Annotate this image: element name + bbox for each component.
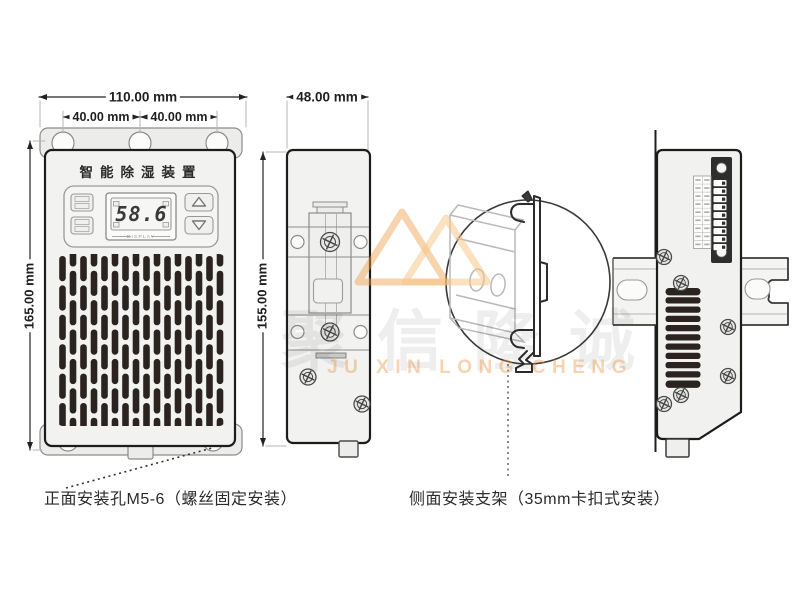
louver-slat [666,371,701,377]
vent-slot [91,359,98,384]
vent-slot [70,359,77,384]
vent-slot [196,330,203,355]
vent-slot [185,285,192,310]
vent-slot [59,344,66,369]
vent-slot [185,344,192,369]
vent-slot [196,359,203,384]
vent-slot [133,359,140,384]
vent-slot [154,388,161,413]
dim-height-165: 165.00 mm [22,260,37,333]
terminal-pin-dot [722,246,725,249]
vent-slot [164,403,171,428]
vent-slot [185,315,192,340]
dim-height-155: 155.00 mm [255,260,270,333]
vent-slot [143,344,150,369]
vent-slot [206,285,213,310]
vent-slot [175,388,182,413]
vent-slot [217,359,224,384]
vent-slot [112,388,119,413]
din-rail-left [613,258,657,325]
vent-slot [101,403,108,428]
label-text-mark [695,179,700,181]
clip-window [314,279,343,303]
dim-hole-right: 40.00 mm [148,110,211,124]
label-text-mark [704,219,709,221]
vent-slot [154,359,161,384]
terminal-pin-dot [722,214,725,217]
display-value: 58.6 [115,202,167,226]
bottom-tab [666,439,689,457]
technical-diagram: 聚信隆诚 JU XIN LONG CHENG 110.00 mm 40.00 m… [0,0,800,600]
vent-slot [59,374,66,399]
vent-slot [196,300,203,325]
vent-slot [185,403,192,428]
vent-slot [101,285,108,310]
terminal-pin-dot [722,182,725,185]
terminal-screw [716,163,726,173]
vent-slot [175,359,182,384]
louver-slat [666,325,701,331]
vent-slot [154,271,161,296]
vent-slot [164,374,171,399]
terminal-pin-dot [722,190,725,193]
rail-slot [617,280,647,300]
vent-slot [122,256,129,281]
vent-slot [59,315,66,340]
vent-slot [164,315,171,340]
vent-slot [70,271,77,296]
vent-slot [122,344,129,369]
vent-slot [70,330,77,355]
vent-slot [143,374,150,399]
vent-slot [112,330,119,355]
label-text-mark [695,195,700,197]
vent-slot [154,330,161,355]
rail-mounted-view [613,130,788,457]
vent-slot [217,388,224,413]
terminal-pin-dot [722,230,725,233]
label-text-mark [704,244,709,246]
band-hole [354,236,367,249]
label-text-mark [695,187,700,189]
louver-slat [666,353,701,359]
vent-slot [217,271,224,296]
vent-slot [143,315,150,340]
din-rail-right [741,258,788,325]
device-title: 智能除湿装置 [80,161,203,181]
vent-slot [112,300,119,325]
louver-slat [666,297,701,303]
side-view [287,150,370,457]
vent-slot [122,374,129,399]
vent-slot [196,388,203,413]
vent-slot [175,271,182,296]
vent-slot [133,330,140,355]
vent-slot [122,403,129,428]
band-hole [354,326,367,339]
terminal-pin-dot [722,238,725,241]
vent-slot [70,300,77,325]
vent-slot [91,388,98,413]
vent-slot [80,403,87,428]
vent-slot [133,300,140,325]
side-louver [666,288,701,388]
vent-slot [80,315,87,340]
vent-slot [316,353,346,358]
dim-width-48: 48.00 mm [293,90,361,105]
vent-slot [133,388,140,413]
vent-slot [133,271,140,296]
vent-slot [217,330,224,355]
label-text-mark [695,244,700,246]
vent-slot [206,344,213,369]
vent-slot [101,315,108,340]
vent-slot [59,285,66,310]
vent-slot [91,271,98,296]
vent-slot [101,256,108,281]
vent-slot [101,374,108,399]
vent-slot [122,315,129,340]
vent-slot [164,285,171,310]
label-text-mark [695,236,700,238]
vent-slot [175,330,182,355]
vent-slot [59,403,66,428]
terminal-pin-dot [722,222,725,225]
terminal-pin-dot [722,206,725,209]
vent-slot [80,374,87,399]
vent-slot [143,256,150,281]
louver-slat [666,344,701,350]
louver-slat [666,362,701,368]
vent-slot [59,256,66,281]
label-text-mark [704,211,709,213]
vent-slot [80,344,87,369]
side-mounting-caption: 侧面安装支架（35mm卡扣式安装） [409,485,670,509]
dim-hole-left: 40.00 mm [70,110,133,124]
label-text-mark [695,203,700,205]
vent-slot [112,271,119,296]
vent-slot [185,256,192,281]
dim-width-110: 110.00 mm [106,90,180,105]
vent-slot [206,403,213,428]
vent-slot [80,256,87,281]
louver-slat [666,334,701,340]
vent-slot [164,256,171,281]
vent-slot [164,344,171,369]
vent-slot [143,285,150,310]
vent-slot [185,374,192,399]
label-text-mark [704,203,709,205]
vent-slot [143,403,150,428]
band-hole [291,236,304,249]
label-text-mark [704,195,709,197]
label-text-mark [704,179,709,181]
clip-cap [313,202,347,207]
label-text-mark [704,236,709,238]
label-text-mark [695,219,700,221]
vent-slot [70,388,77,413]
vent-slot [91,300,98,325]
vent-slot [206,256,213,281]
label-text-mark [695,228,700,230]
vent-slot [206,374,213,399]
vent-slot [175,300,182,325]
louver-slat [666,381,701,388]
vent-slot [206,315,213,340]
vent-slot [101,344,108,369]
label-text-mark [695,211,700,213]
vent-slot [80,285,87,310]
rail-slot [745,279,770,299]
label-text-mark [704,228,709,230]
louver-slat [666,307,701,313]
vent-slot [196,271,203,296]
vent-slot [112,359,119,384]
louver-slat [666,316,701,322]
band-hole [291,326,304,339]
vent-slot [217,300,224,325]
vent-slot [122,285,129,310]
vent-slot [154,300,161,325]
detail-callout [446,191,610,372]
bottom-tab [339,441,358,457]
front-mounting-caption: 正面安装孔M5-6（螺丝固定安装） [44,485,297,509]
label-text-mark [704,187,709,189]
terminal-pins [714,180,727,250]
terminal-pin-dot [722,198,725,201]
vent-slot [91,330,98,355]
display-label: DISPLAY [127,235,155,240]
